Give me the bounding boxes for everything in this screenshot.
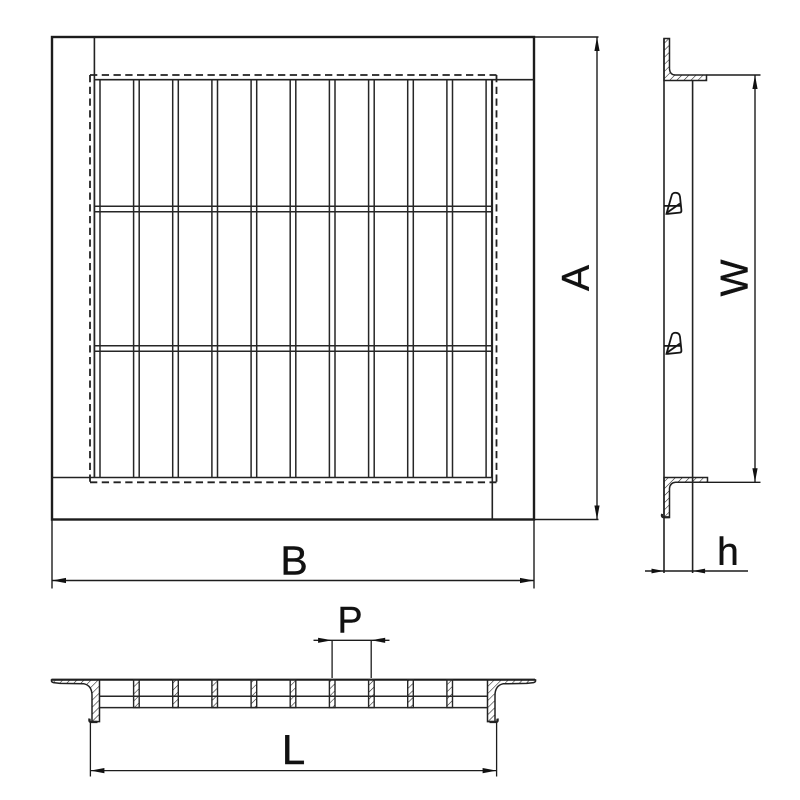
svg-text:W: W [714, 259, 757, 296]
svg-text:P: P [337, 599, 362, 641]
svg-text:B: B [280, 537, 307, 583]
svg-text:h: h [717, 531, 739, 574]
svg-text:A: A [555, 265, 598, 291]
svg-text:L: L [282, 726, 305, 773]
